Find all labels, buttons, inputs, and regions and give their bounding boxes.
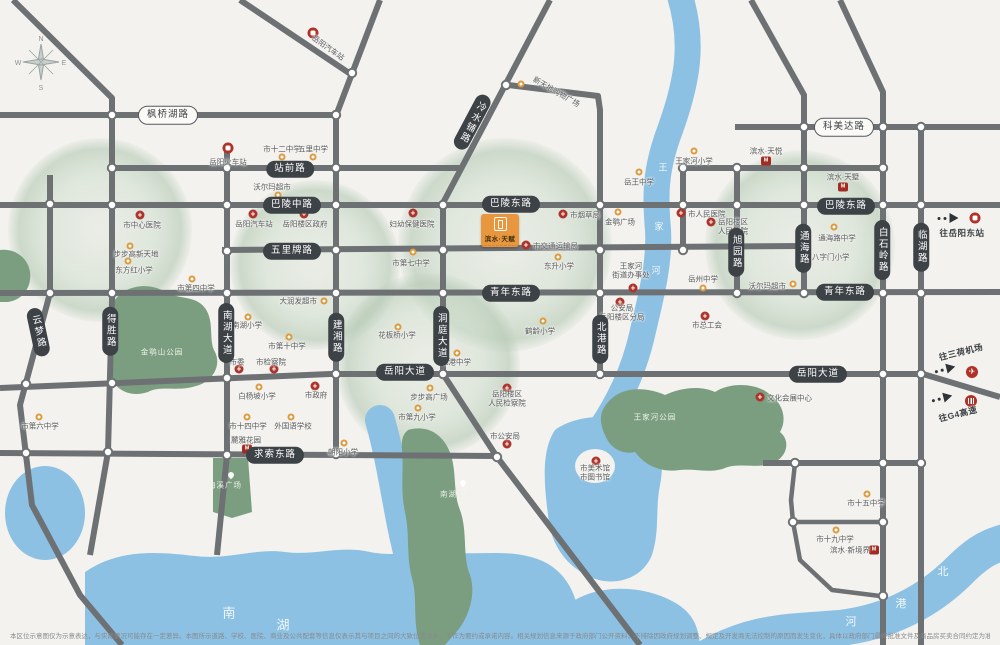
poi-label: 妇幼保健医院 — [390, 219, 435, 228]
poi-school-icon — [636, 169, 643, 176]
direction-arrow — [934, 362, 957, 377]
poi-school-icon — [321, 298, 328, 305]
poi-label: 市第四中学 — [177, 283, 215, 292]
location-map: N E S W 滨水·天赋 —————————— 枫桥湖路科美达路站前路巴陵中路… — [0, 0, 1000, 645]
poi-label: 市检察院 — [256, 357, 286, 366]
poi-school-icon — [831, 224, 838, 231]
water-name-char: 港 — [896, 595, 907, 611]
poi-label: 王家河小学 — [675, 156, 713, 165]
road-label-云梦路: 云梦路 — [25, 307, 50, 358]
water-name-char: 北 — [938, 563, 949, 579]
poi-label: 麓雅花园 — [231, 435, 261, 444]
direction-label: 往岳阳东站 — [939, 227, 984, 239]
poi-label: 市烟草局 — [570, 210, 600, 219]
poi-label: 市第七中学 — [392, 258, 430, 267]
poi-school-icon — [415, 405, 422, 412]
poi-label: 白杨坡小学 — [238, 391, 276, 400]
poi-label: 市十二中学 — [263, 144, 301, 153]
poi-label: 市美术馆市图书馆 — [580, 464, 610, 483]
poi-label: 滨水·天墅 — [827, 172, 860, 181]
poi-label: 朝阳小学 — [328, 447, 358, 456]
poi-label: 花板桥小学 — [378, 330, 416, 339]
poi-school-icon — [454, 350, 461, 357]
poi-label: 岳阳楼区人民检察院 — [488, 390, 526, 409]
direction-arrow — [931, 391, 954, 406]
poi-school-icon — [286, 334, 293, 341]
poi-school-icon — [125, 258, 132, 265]
poi-label: 岳阳楼区政府 — [283, 219, 328, 228]
poi-gov-icon: + — [311, 382, 320, 391]
park-label-南湖公园: 南湖公园 — [440, 489, 474, 500]
poi-school-icon — [189, 276, 196, 283]
poi-gov-icon: + — [409, 209, 418, 218]
road-label-青年东路: 青年东路 — [816, 284, 874, 301]
park-label-梅溪广场: 梅溪广场 — [208, 480, 242, 491]
poi-label: 岳州中学 — [688, 274, 718, 283]
water-name-char: 河 — [846, 613, 857, 629]
poi-label: 南湖小学 — [232, 320, 262, 329]
poi-label: 市第六中学 — [21, 421, 59, 430]
project-emblem-icon — [494, 217, 507, 231]
poi-school-icon — [864, 491, 871, 498]
poi-school-icon — [691, 148, 698, 155]
poi-label: 文化会展中心 — [767, 393, 812, 402]
road-label-旭园路: 旭园路 — [728, 228, 744, 277]
water-name-char: 王 — [658, 161, 667, 174]
map-overlay: 枫桥湖路科美达路站前路巴陵中路巴陵东路巴陵东路五里牌路青年东路青年东路岳阳大道岳… — [0, 0, 1000, 645]
road-label-枫桥湖路: 枫桥湖路 — [138, 106, 198, 125]
poi-label: 沃尔玛超市 — [749, 281, 787, 290]
project-logo: 滨水·天赋 —————————— — [481, 214, 519, 247]
poi-gov-icon: + — [559, 210, 568, 219]
poi-label: 鹤龄小学 — [525, 326, 555, 335]
poi-brand-icon: M — [838, 183, 848, 192]
poi-label: 新天地购物广场 — [531, 75, 581, 109]
compass-w: W — [15, 60, 22, 67]
poi-gov-icon: + — [677, 209, 686, 218]
road-label-南湖大道: 南湖大道 — [218, 303, 234, 363]
poi-label: 市第十中学 — [268, 341, 306, 350]
poi-label: 滨水·天悦 — [750, 146, 783, 155]
poi-brand-icon: M — [761, 157, 771, 166]
poi-gov-icon: + — [136, 211, 145, 220]
compass-rose: N E S W — [14, 32, 68, 92]
poi-label: 五里中学 — [298, 144, 328, 153]
road-label-岳阳大道: 岳阳大道 — [789, 366, 847, 383]
poi-school-icon — [288, 414, 295, 421]
disclaimer-text: 本区位示意图仅为示意表达，与实际情况可能存在一定差异。本图所示道路、学校、医院、… — [10, 630, 990, 640]
poi-label: 市第九小学 — [398, 412, 436, 421]
road-label-临湖路: 临湖路 — [913, 223, 929, 272]
poi-school-icon — [615, 209, 622, 216]
poi-label: 沃尔玛超市 — [253, 182, 291, 191]
poi-label: 步步高广场 — [410, 392, 448, 401]
road-label-洞庭大道: 洞庭大道 — [433, 306, 449, 366]
compass-s: S — [39, 85, 44, 92]
poi-label: 大润发超市 — [280, 296, 318, 305]
water-name-char: 南 — [222, 603, 235, 622]
poi-school-icon — [256, 384, 263, 391]
road-label-通海路: 通海路 — [795, 224, 811, 273]
road-label-白石岭路: 白石岭路 — [874, 220, 890, 280]
poi-school-icon — [518, 81, 525, 88]
poi-label: 步步高新天地 — [114, 249, 159, 258]
poi-label: 市公安局 — [490, 431, 520, 440]
poi-brand-icon: M — [869, 546, 879, 555]
fountain-icon — [459, 479, 467, 487]
compass-n: N — [38, 36, 43, 43]
road-label-青年东路: 青年东路 — [482, 285, 540, 302]
poi-school-icon — [833, 527, 840, 534]
poi-label: 通海路中学 — [818, 233, 856, 242]
poi-school-icon — [427, 385, 434, 392]
poi-label: 市十九中学 — [816, 534, 854, 543]
road-label-站前路: 站前路 — [266, 161, 314, 178]
road-label-建湘路: 建湘路 — [328, 313, 344, 362]
road-label-巴陵东路: 巴陵东路 — [817, 198, 875, 215]
poi-school-icon — [790, 281, 797, 288]
water-name-char: 河 — [651, 264, 660, 277]
poi-label: 滨水·新境界 — [830, 545, 870, 554]
poi-label: 岳阳火车站 — [209, 157, 247, 166]
poi-school-icon — [244, 414, 251, 421]
poi-gov-icon: + — [249, 210, 258, 219]
road-label-岳阳大道: 岳阳大道 — [376, 364, 434, 381]
poi-label: 市十五中学 — [847, 498, 885, 507]
direction-arrow — [938, 213, 959, 223]
road-label-冷水铺路: 冷水铺路 — [451, 92, 493, 152]
road-label-北港路: 北港路 — [592, 315, 608, 364]
poi-label: 外国语学校 — [274, 421, 312, 430]
poi-label: 市十四中学 — [229, 421, 267, 430]
fountain-icon — [227, 471, 235, 479]
road-label-科美达路: 科美达路 — [814, 118, 874, 137]
road-label-求索东路: 求索东路 — [246, 447, 304, 464]
road-label-得胜路: 得胜路 — [102, 307, 118, 356]
poi-gov-icon: + — [503, 440, 512, 449]
poi-school-icon — [410, 249, 417, 256]
poi-label: 东方红小学 — [115, 265, 153, 274]
poi-label: 岳王中学 — [624, 177, 654, 186]
poi-gov-icon: + — [629, 284, 638, 293]
poi-label: 金鹗广场 — [605, 217, 635, 226]
project-logo-tagline: —————————— — [480, 244, 520, 247]
poi-gov-icon: + — [756, 393, 765, 402]
poi-label: 东升小学 — [544, 261, 574, 270]
poi-school-icon — [279, 154, 286, 161]
road-label-五里牌路: 五里牌路 — [263, 243, 321, 260]
road-label-巴陵东路: 巴陵东路 — [482, 196, 540, 213]
poi-label: 王家河街道办事处 — [612, 262, 650, 281]
poi-school-icon — [555, 254, 562, 261]
poi-school-icon — [540, 318, 547, 325]
poi-label: 市中心医院 — [123, 220, 161, 229]
direction-label: 往G4高速 — [937, 403, 978, 424]
road-label-巴陵中路: 巴陵中路 — [263, 197, 321, 214]
direction-train-icon — [970, 213, 981, 224]
poi-label: 八字门小学 — [812, 252, 850, 261]
compass-e: E — [62, 60, 67, 67]
poi-label: 岳阳汽车站 — [310, 33, 346, 62]
direction-plane-icon: ✈ — [966, 366, 978, 378]
poi-school-icon — [341, 440, 348, 447]
park-label-王家河公园: 王家河公园 — [634, 412, 677, 423]
poi-school-icon — [36, 414, 43, 421]
poi-label: 市政府 — [305, 390, 328, 399]
poi-label: 市交通运输局 — [533, 241, 578, 250]
poi-gov-icon: + — [707, 218, 716, 227]
project-logo-title: 滨水·天赋 — [485, 233, 516, 243]
direction-label: 往三荷机场 — [938, 341, 985, 364]
poi-gov-icon: + — [701, 312, 710, 321]
poi-label: 市总工会 — [692, 320, 722, 329]
water-name-char: 家 — [654, 220, 663, 233]
poi-gov-icon: + — [522, 241, 531, 250]
park-label-金鹗山公园: 金鹗山公园 — [141, 347, 184, 358]
poi-label: 岳阳汽车站 — [235, 219, 273, 228]
poi-train-icon — [223, 143, 234, 154]
poi-school-icon — [310, 154, 317, 161]
poi-school-icon — [700, 285, 707, 292]
